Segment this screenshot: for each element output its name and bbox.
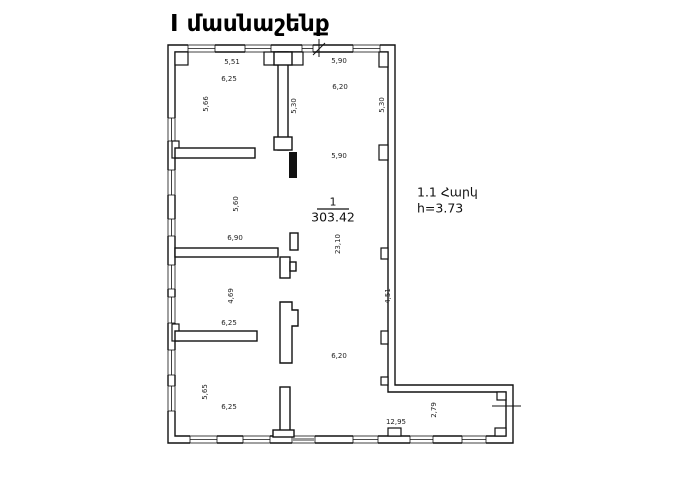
dimension-label: 12,95 bbox=[386, 418, 406, 426]
dimension-label: 5,65 bbox=[201, 384, 209, 400]
dimension-label: 4,51 bbox=[384, 288, 392, 304]
floor-note-line2: h=3.73 bbox=[417, 201, 463, 216]
partition-wall-1 bbox=[175, 148, 255, 158]
dimension-label: 5,30 bbox=[378, 97, 386, 113]
dimension-label: 6,90 bbox=[227, 234, 243, 242]
column bbox=[290, 233, 298, 250]
dimension-label: 5,66 bbox=[202, 96, 210, 112]
dimension-label: 5,30 bbox=[290, 98, 298, 114]
floor-note: 1.1 Հարկ h=3.73 bbox=[417, 185, 478, 216]
partition-wall-2 bbox=[175, 248, 278, 257]
dimension-label: 2,79 bbox=[430, 402, 438, 418]
dimension-label: 5,60 bbox=[232, 196, 240, 212]
room-area: 303.42 bbox=[311, 210, 355, 225]
dimension-label: 6,20 bbox=[331, 352, 347, 360]
spine-wall-bottom bbox=[280, 387, 290, 431]
page-title: I մասնաշենք bbox=[170, 11, 330, 37]
dimension-label: 4,69 bbox=[227, 288, 235, 304]
dimension-label: 6,25 bbox=[221, 403, 237, 411]
spine-wall-top bbox=[278, 52, 288, 150]
partition-wall-3 bbox=[175, 331, 257, 341]
dimension-label: 6,25 bbox=[221, 319, 237, 327]
floor-note-line1: 1.1 Հարկ bbox=[417, 185, 478, 200]
shaded-window-band bbox=[292, 438, 315, 441]
dimension-label: 23,10 bbox=[334, 234, 342, 254]
floor-plan-drawing: I մասնաշենք bbox=[0, 0, 674, 477]
dimension-label: 5,90 bbox=[331, 57, 347, 65]
dimension-label: 5,51 bbox=[224, 58, 240, 66]
room-number: 1 bbox=[330, 196, 337, 209]
dimension-label: 5,90 bbox=[331, 152, 347, 160]
dimension-label: 6,20 bbox=[332, 83, 348, 91]
column bbox=[289, 152, 297, 178]
dimension-label: 6,25 bbox=[221, 75, 237, 83]
